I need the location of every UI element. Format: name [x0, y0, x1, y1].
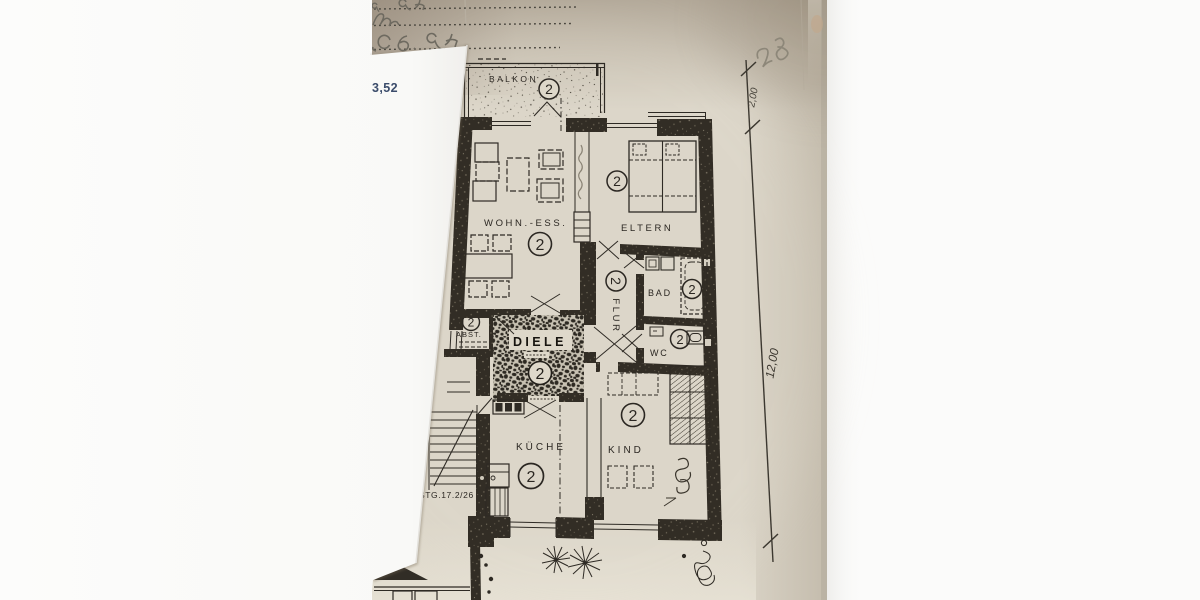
svg-text:2: 2 [608, 277, 624, 285]
svg-text:ELTERN: ELTERN [621, 223, 673, 234]
svg-text:ABST.: ABST. [456, 330, 482, 339]
svg-text:BALKON: BALKON [489, 74, 538, 84]
svg-text:2: 2 [688, 282, 695, 297]
svg-text:DIELE: DIELE [513, 335, 567, 349]
svg-text:2: 2 [676, 332, 683, 347]
svg-text:2: 2 [536, 366, 545, 383]
svg-text:2: 2 [629, 408, 638, 425]
svg-text:STG.17.2/26: STG.17.2/26 [419, 490, 474, 500]
svg-text:3,52: 3,52 [372, 81, 398, 95]
svg-text:KÜCHE: KÜCHE [516, 441, 566, 453]
svg-text:BAD: BAD [648, 288, 672, 298]
svg-text:2: 2 [613, 173, 621, 189]
svg-text:WC: WC [650, 348, 669, 358]
svg-text:2: 2 [545, 81, 553, 97]
svg-text:2: 2 [536, 237, 545, 254]
svg-text:KIND: KIND [608, 445, 644, 456]
svg-text:FLUR: FLUR [610, 298, 621, 333]
svg-text:WOHN.-ESS.: WOHN.-ESS. [484, 218, 568, 229]
svg-text:2: 2 [527, 469, 536, 486]
